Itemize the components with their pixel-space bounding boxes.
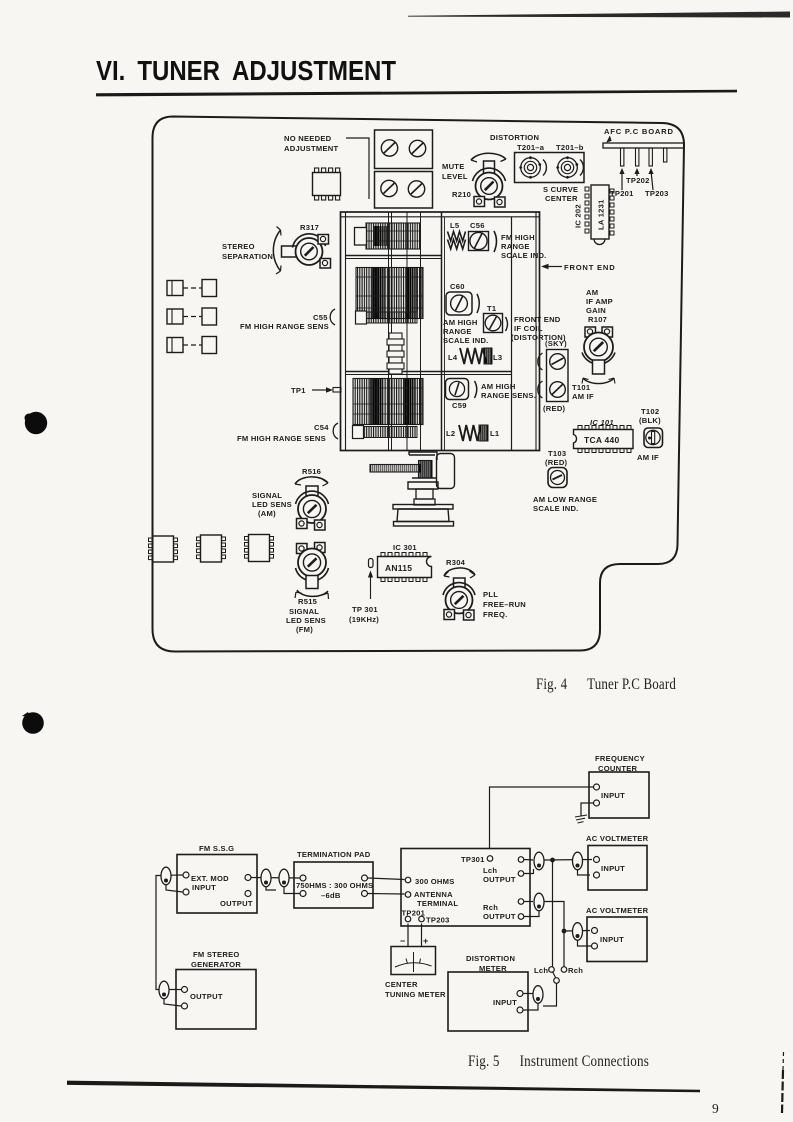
svg-text:FRONT END: FRONT END <box>564 263 616 272</box>
svg-text:FREQ.: FREQ. <box>483 610 507 619</box>
svg-text:(RED): (RED) <box>545 458 568 467</box>
svg-text:AC VOLTMETER: AC VOLTMETER <box>586 906 649 915</box>
svg-text:TERMINAL: TERMINAL <box>417 899 458 908</box>
svg-text:RANGE: RANGE <box>501 242 530 251</box>
svg-text:INPUT: INPUT <box>493 998 517 1007</box>
svg-text:AM IF: AM IF <box>637 453 659 462</box>
svg-text:AM HIGH: AM HIGH <box>443 318 478 327</box>
svg-text:RANGE: RANGE <box>443 327 472 336</box>
svg-text:EXT. MOD: EXT. MOD <box>191 874 229 883</box>
svg-text:IC 301: IC 301 <box>393 543 417 552</box>
svg-text:Fig. 4 Tuner P.C Board: Fig. 4 Tuner P.C Board <box>536 676 676 693</box>
svg-text:9: 9 <box>712 1101 719 1116</box>
svg-text:Rch: Rch <box>568 966 583 975</box>
svg-text:L2: L2 <box>446 429 455 438</box>
svg-text:TUNING METER: TUNING METER <box>385 990 446 999</box>
svg-text:CENTER: CENTER <box>385 980 418 989</box>
svg-text:−: − <box>400 936 406 946</box>
svg-text:GENERATOR: GENERATOR <box>191 960 241 969</box>
svg-text:OUTPUT: OUTPUT <box>190 992 223 1001</box>
svg-text:T102: T102 <box>641 407 659 416</box>
svg-text:T201–b: T201–b <box>556 143 584 152</box>
svg-text:TP201: TP201 <box>610 189 634 198</box>
svg-text:FM HIGH RANGE SENS: FM HIGH RANGE SENS <box>237 434 326 443</box>
svg-text:(FM): (FM) <box>296 625 313 634</box>
svg-text:LED SENS: LED SENS <box>286 616 326 625</box>
svg-text:FM HIGH RANGE SENS: FM HIGH RANGE SENS <box>240 322 329 331</box>
svg-text:AC VOLTMETER: AC VOLTMETER <box>586 834 649 843</box>
svg-text:INPUT: INPUT <box>601 791 625 800</box>
svg-text:NO NEEDED: NO NEEDED <box>284 134 332 143</box>
svg-text:INPUT: INPUT <box>192 883 216 892</box>
svg-text:TP203: TP203 <box>426 916 450 925</box>
svg-text:ADJUSTMENT: ADJUSTMENT <box>284 144 339 153</box>
svg-text:TERMINATION PAD: TERMINATION PAD <box>297 850 371 859</box>
svg-text:+: + <box>423 936 429 946</box>
svg-text:LEVEL: LEVEL <box>442 172 468 181</box>
svg-text:AFC P.C BOARD: AFC P.C BOARD <box>604 127 674 136</box>
svg-text:SIGNAL: SIGNAL <box>289 607 319 616</box>
svg-text:GAIN: GAIN <box>586 306 606 315</box>
svg-text:C56: C56 <box>470 221 485 230</box>
svg-text:C60: C60 <box>450 282 465 291</box>
svg-text:TP202: TP202 <box>626 176 650 185</box>
svg-text:MUTE: MUTE <box>442 162 465 171</box>
svg-text:FREE–RUN: FREE–RUN <box>483 600 526 609</box>
svg-text:OUTPUT: OUTPUT <box>483 875 516 884</box>
svg-text:L3: L3 <box>493 353 502 362</box>
svg-text:Lch: Lch <box>534 966 548 975</box>
svg-text:TP 301: TP 301 <box>352 605 378 614</box>
svg-text:R317: R317 <box>300 223 319 232</box>
svg-text:CENTER: CENTER <box>545 194 578 203</box>
svg-text:Fig. 5 Instrument Connections: Fig. 5 Instrument Connections <box>468 1053 649 1070</box>
svg-text:AM LOW RANGE: AM LOW RANGE <box>533 495 597 504</box>
svg-text:T101: T101 <box>572 383 591 392</box>
svg-text:SCALE IND.: SCALE IND. <box>443 336 489 345</box>
svg-text:FREQUENCY: FREQUENCY <box>595 754 645 763</box>
svg-text:VI. TUNER ADJUSTMENT: VI. TUNER ADJUSTMENT <box>96 55 396 86</box>
svg-text:300 OHMS: 300 OHMS <box>415 877 455 886</box>
svg-text:SIGNAL: SIGNAL <box>252 491 282 500</box>
svg-text:ANTENNA: ANTENNA <box>414 890 453 899</box>
svg-text:INPUT: INPUT <box>600 935 624 944</box>
svg-text:(BLK): (BLK) <box>639 416 661 425</box>
svg-text:LA 1231: LA 1231 <box>597 199 606 230</box>
svg-text:SEPARATION: SEPARATION <box>222 252 273 261</box>
svg-text:C59: C59 <box>452 401 467 410</box>
svg-text:OUTPUT: OUTPUT <box>483 912 516 921</box>
svg-text:R304: R304 <box>446 558 466 567</box>
svg-text:TP1: TP1 <box>291 386 306 395</box>
svg-text:T1: T1 <box>487 304 497 313</box>
svg-text:PLL: PLL <box>483 590 498 599</box>
svg-text:–6dB: –6dB <box>321 891 341 900</box>
svg-text:R107: R107 <box>588 315 607 324</box>
svg-text:FM S.S.G: FM S.S.G <box>199 844 234 853</box>
svg-text:(RED): (RED) <box>543 404 566 413</box>
svg-text:TP203: TP203 <box>645 189 669 198</box>
svg-text:OUTPUT: OUTPUT <box>220 899 253 908</box>
svg-text:SCALE IND.: SCALE IND. <box>533 504 579 513</box>
svg-text:T201–a: T201–a <box>517 143 545 152</box>
svg-text:FM HIGH: FM HIGH <box>501 233 535 242</box>
svg-text:T103: T103 <box>548 449 566 458</box>
svg-text:IC 202: IC 202 <box>574 204 583 228</box>
svg-text:R515: R515 <box>298 597 318 606</box>
svg-text:TCA 440: TCA 440 <box>584 435 619 445</box>
svg-text:DISTORTION: DISTORTION <box>466 954 515 963</box>
svg-text:(SKY): (SKY) <box>545 339 567 348</box>
svg-text:L5: L5 <box>450 221 460 230</box>
svg-text:(19KHz): (19KHz) <box>349 615 379 624</box>
svg-text:750HMS : 300 OHMS: 750HMS : 300 OHMS <box>296 881 373 890</box>
svg-text:AM: AM <box>586 288 598 297</box>
svg-text:C55: C55 <box>313 313 328 322</box>
svg-text:L1: L1 <box>490 429 500 438</box>
svg-text:FM STEREO: FM STEREO <box>193 950 240 959</box>
svg-text:AM HIGH: AM HIGH <box>481 382 516 391</box>
svg-text:RANGE SENS.: RANGE SENS. <box>481 391 536 400</box>
svg-text:(AM): (AM) <box>258 509 276 518</box>
svg-text:R516: R516 <box>302 467 321 476</box>
svg-text:R210: R210 <box>452 190 471 199</box>
svg-text:INPUT: INPUT <box>601 864 625 873</box>
svg-text:AN115: AN115 <box>385 563 412 573</box>
svg-text:S CURVE: S CURVE <box>543 185 578 194</box>
svg-text:AM IF: AM IF <box>572 392 594 401</box>
svg-text:C54: C54 <box>314 423 329 432</box>
svg-text:Lch: Lch <box>483 866 497 875</box>
svg-text:LED SENS: LED SENS <box>252 500 292 509</box>
svg-text:Rch: Rch <box>483 903 498 912</box>
svg-text:FRONT END: FRONT END <box>514 315 561 324</box>
svg-text:SCALE IND.: SCALE IND. <box>501 251 547 260</box>
svg-text:STEREO: STEREO <box>222 242 255 251</box>
svg-text:TP301: TP301 <box>461 855 485 864</box>
svg-text:IF AMP: IF AMP <box>586 297 613 306</box>
svg-text:IF COIL: IF COIL <box>514 324 543 333</box>
svg-text:DISTORTION: DISTORTION <box>490 133 539 142</box>
svg-text:L4: L4 <box>448 353 458 362</box>
